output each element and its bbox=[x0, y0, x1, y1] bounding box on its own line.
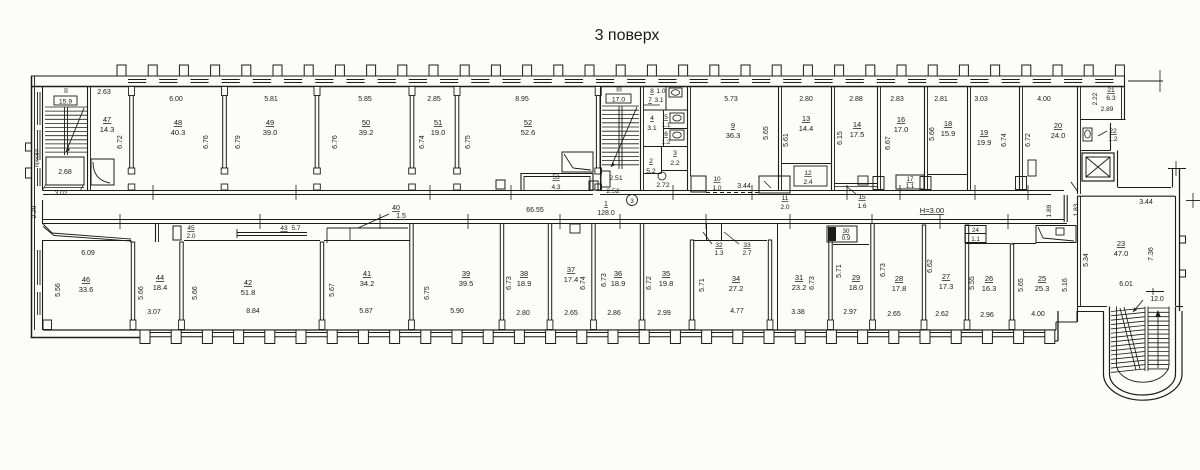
svg-text:41: 41 bbox=[363, 269, 371, 278]
svg-text:14.3: 14.3 bbox=[100, 125, 115, 134]
svg-text:5.67: 5.67 bbox=[329, 283, 336, 297]
svg-text:H=3.00: H=3.00 bbox=[920, 206, 944, 215]
svg-text:38: 38 bbox=[520, 269, 528, 278]
svg-text:5.7: 5.7 bbox=[291, 225, 300, 232]
svg-text:8.95: 8.95 bbox=[515, 96, 529, 103]
svg-text:5.65: 5.65 bbox=[763, 126, 770, 140]
svg-text:36.3: 36.3 bbox=[726, 131, 741, 140]
svg-text:5.85: 5.85 bbox=[358, 96, 372, 103]
svg-text:43: 43 bbox=[280, 225, 288, 232]
svg-text:37: 37 bbox=[567, 265, 575, 274]
svg-text:1.0: 1.0 bbox=[656, 88, 665, 95]
svg-text:5.66: 5.66 bbox=[192, 286, 199, 300]
svg-text:1.6: 1.6 bbox=[857, 203, 866, 210]
svg-text:5.87: 5.87 bbox=[359, 308, 373, 315]
svg-text:5: 5 bbox=[664, 114, 668, 121]
svg-text:1.89: 1.89 bbox=[1046, 204, 1053, 217]
svg-text:2.62: 2.62 bbox=[935, 311, 949, 318]
svg-text:3.1: 3.1 bbox=[647, 125, 657, 132]
svg-text:16: 16 bbox=[897, 115, 905, 124]
svg-text:15: 15 bbox=[858, 194, 866, 201]
svg-text:6.62: 6.62 bbox=[927, 259, 934, 273]
svg-text:4.00: 4.00 bbox=[1031, 311, 1045, 318]
svg-text:5.16: 5.16 bbox=[1062, 278, 1069, 292]
svg-text:3.02: 3.02 bbox=[55, 190, 68, 197]
svg-text:15.9: 15.9 bbox=[59, 99, 72, 106]
svg-text:2.72: 2.72 bbox=[656, 182, 669, 189]
svg-text:10: 10 bbox=[713, 176, 721, 183]
svg-text:22: 22 bbox=[1109, 128, 1117, 135]
svg-text:39.0: 39.0 bbox=[263, 128, 278, 137]
svg-text:2.4: 2.4 bbox=[803, 179, 812, 186]
svg-text:5.66: 5.66 bbox=[138, 286, 145, 300]
svg-text:18.4: 18.4 bbox=[153, 283, 168, 292]
svg-text:1.83: 1.83 bbox=[1073, 203, 1080, 216]
svg-text:5.71: 5.71 bbox=[699, 278, 706, 292]
svg-text:13: 13 bbox=[802, 114, 810, 123]
svg-text:2.80: 2.80 bbox=[516, 310, 530, 317]
svg-text:27.2: 27.2 bbox=[729, 284, 744, 293]
svg-text:2.97: 2.97 bbox=[843, 309, 857, 316]
svg-text:8.84: 8.84 bbox=[246, 308, 260, 315]
svg-text:25.3: 25.3 bbox=[1035, 284, 1050, 293]
svg-text:6.00: 6.00 bbox=[169, 96, 183, 103]
svg-text:8: 8 bbox=[650, 88, 654, 95]
svg-text:5.34: 5.34 bbox=[1083, 253, 1090, 267]
svg-text:40.3: 40.3 bbox=[171, 128, 186, 137]
svg-text:2.0: 2.0 bbox=[780, 204, 789, 211]
svg-text:5.56: 5.56 bbox=[55, 283, 62, 297]
svg-text:46: 46 bbox=[82, 275, 90, 284]
svg-text:47: 47 bbox=[103, 115, 111, 124]
svg-text:6.74: 6.74 bbox=[580, 276, 587, 290]
svg-text:3: 3 bbox=[630, 198, 634, 205]
svg-text:2.88: 2.88 bbox=[849, 96, 863, 103]
svg-text:2.52: 2.52 bbox=[606, 188, 619, 195]
svg-text:17.0: 17.0 bbox=[894, 125, 909, 134]
svg-text:17: 17 bbox=[907, 176, 914, 183]
svg-text:6.09: 6.09 bbox=[81, 250, 95, 257]
svg-text:3 поверх: 3 поверх bbox=[595, 27, 660, 44]
svg-text:23: 23 bbox=[1117, 239, 1125, 248]
svg-text:17.3: 17.3 bbox=[939, 282, 954, 291]
svg-text:2.51: 2.51 bbox=[609, 175, 622, 182]
svg-text:39.2: 39.2 bbox=[359, 128, 374, 137]
svg-text:1.1: 1.1 bbox=[971, 236, 980, 243]
svg-text:6.76: 6.76 bbox=[203, 135, 210, 149]
svg-text:35: 35 bbox=[662, 269, 670, 278]
svg-text:1.5: 1.5 bbox=[396, 213, 406, 220]
svg-text:5.55: 5.55 bbox=[969, 276, 976, 290]
svg-text:6.72: 6.72 bbox=[1025, 133, 1032, 147]
svg-text:2.63: 2.63 bbox=[97, 89, 111, 96]
svg-text:2.85: 2.85 bbox=[427, 96, 441, 103]
svg-text:2.65: 2.65 bbox=[564, 310, 578, 317]
svg-text:4.3: 4.3 bbox=[551, 184, 560, 191]
svg-text:18.0: 18.0 bbox=[849, 283, 864, 292]
svg-text:49: 49 bbox=[266, 118, 274, 127]
svg-text:6.73: 6.73 bbox=[506, 276, 513, 290]
svg-text:30: 30 bbox=[843, 228, 850, 235]
svg-text:17.0: 17.0 bbox=[612, 97, 625, 104]
svg-text:2.22: 2.22 bbox=[1092, 92, 1099, 105]
svg-text:2.96: 2.96 bbox=[980, 312, 994, 319]
svg-text:5.81: 5.81 bbox=[264, 96, 278, 103]
svg-text:26: 26 bbox=[985, 274, 993, 283]
svg-text:12: 12 bbox=[804, 170, 812, 177]
svg-text:6.73: 6.73 bbox=[809, 276, 816, 290]
svg-text:31: 31 bbox=[795, 273, 803, 282]
svg-text:3.44: 3.44 bbox=[1139, 199, 1153, 206]
svg-text:15.9: 15.9 bbox=[941, 129, 956, 138]
svg-text:5.66: 5.66 bbox=[929, 127, 936, 141]
svg-text:6.73: 6.73 bbox=[880, 263, 887, 277]
svg-text:27: 27 bbox=[942, 272, 950, 281]
svg-text:11: 11 bbox=[782, 195, 789, 202]
svg-text:2.68: 2.68 bbox=[58, 169, 72, 176]
svg-text:6.67: 6.67 bbox=[885, 136, 892, 150]
svg-text:18.9: 18.9 bbox=[517, 279, 532, 288]
svg-text:3.44: 3.44 bbox=[737, 183, 751, 190]
svg-text:6.73: 6.73 bbox=[601, 273, 608, 287]
svg-text:6.3: 6.3 bbox=[1106, 95, 1116, 102]
svg-text:3.38: 3.38 bbox=[791, 309, 805, 316]
svg-text:3.03: 3.03 bbox=[974, 96, 988, 103]
svg-text:24: 24 bbox=[972, 227, 979, 234]
svg-text:33.6: 33.6 bbox=[79, 285, 94, 294]
svg-text:5.2: 5.2 bbox=[646, 168, 656, 175]
svg-text:2.29: 2.29 bbox=[31, 205, 38, 218]
svg-text:51: 51 bbox=[434, 118, 442, 127]
svg-text:1.1: 1.1 bbox=[906, 183, 915, 190]
svg-text:6.72: 6.72 bbox=[117, 135, 124, 149]
svg-text:44: 44 bbox=[156, 273, 164, 282]
svg-text:4.77: 4.77 bbox=[730, 308, 744, 315]
svg-text:52.6: 52.6 bbox=[521, 128, 536, 137]
svg-text:19: 19 bbox=[980, 128, 988, 137]
svg-text:2.81: 2.81 bbox=[934, 96, 948, 103]
svg-text:2.99: 2.99 bbox=[657, 310, 671, 317]
svg-text:34.2: 34.2 bbox=[360, 279, 375, 288]
svg-text:45: 45 bbox=[187, 225, 195, 232]
svg-text:2.86: 2.86 bbox=[607, 310, 621, 317]
svg-text:3: 3 bbox=[673, 150, 677, 157]
svg-text:1.1: 1.1 bbox=[661, 122, 670, 129]
svg-text:просвіт: просвіт bbox=[35, 148, 41, 167]
svg-text:36: 36 bbox=[614, 269, 622, 278]
svg-text:17.4: 17.4 bbox=[564, 275, 579, 284]
svg-text:4.00: 4.00 bbox=[1037, 96, 1051, 103]
svg-text:6.75: 6.75 bbox=[424, 286, 431, 300]
svg-text:6.74: 6.74 bbox=[419, 135, 426, 149]
svg-text:6.01: 6.01 bbox=[1119, 281, 1133, 288]
svg-text:53: 53 bbox=[552, 174, 560, 181]
svg-text:40: 40 bbox=[392, 205, 400, 212]
svg-text:19.0: 19.0 bbox=[431, 128, 446, 137]
svg-text:6.74: 6.74 bbox=[1001, 133, 1008, 147]
svg-text:32: 32 bbox=[715, 242, 723, 249]
svg-text:II: II bbox=[64, 88, 68, 95]
svg-text:2.65: 2.65 bbox=[887, 311, 901, 318]
svg-text:20: 20 bbox=[1054, 121, 1062, 130]
svg-text:39.5: 39.5 bbox=[459, 279, 474, 288]
svg-text:21: 21 bbox=[1107, 87, 1115, 94]
svg-text:7.36: 7.36 bbox=[1148, 247, 1155, 261]
svg-text:2.2: 2.2 bbox=[670, 160, 680, 167]
svg-text:12.0: 12.0 bbox=[1150, 296, 1164, 303]
svg-text:2.7: 2.7 bbox=[742, 250, 751, 257]
svg-text:1.3: 1.3 bbox=[714, 250, 723, 257]
svg-text:17.5: 17.5 bbox=[850, 130, 865, 139]
svg-text:1.2: 1.2 bbox=[1108, 136, 1118, 143]
svg-text:52: 52 bbox=[524, 118, 532, 127]
svg-text:34: 34 bbox=[732, 274, 740, 283]
svg-text:5.71: 5.71 bbox=[836, 264, 843, 278]
svg-text:17.8: 17.8 bbox=[892, 284, 907, 293]
svg-text:2.0: 2.0 bbox=[186, 233, 195, 240]
svg-text:1.0: 1.0 bbox=[712, 185, 721, 192]
svg-text:7: 7 bbox=[648, 97, 652, 104]
svg-text:6.75: 6.75 bbox=[465, 135, 472, 149]
svg-text:25: 25 bbox=[1038, 274, 1046, 283]
svg-text:2.89: 2.89 bbox=[1101, 106, 1114, 113]
svg-text:0.9: 0.9 bbox=[842, 235, 851, 242]
svg-text:42: 42 bbox=[244, 278, 252, 287]
svg-text:19.9: 19.9 bbox=[977, 138, 992, 147]
svg-text:5.65: 5.65 bbox=[1018, 278, 1025, 292]
svg-text:III: III bbox=[616, 87, 622, 94]
svg-text:18: 18 bbox=[944, 119, 952, 128]
svg-text:23.2: 23.2 bbox=[792, 283, 807, 292]
svg-text:6.76: 6.76 bbox=[332, 135, 339, 149]
svg-text:1: 1 bbox=[604, 201, 608, 208]
svg-text:5.61: 5.61 bbox=[783, 133, 790, 147]
svg-text:18.9: 18.9 bbox=[611, 279, 626, 288]
svg-text:19.8: 19.8 bbox=[659, 279, 674, 288]
svg-text:16.3: 16.3 bbox=[982, 284, 997, 293]
svg-text:14.4: 14.4 bbox=[799, 124, 814, 133]
svg-text:3.07: 3.07 bbox=[147, 309, 161, 316]
svg-text:6.79: 6.79 bbox=[235, 135, 242, 149]
svg-text:2.83: 2.83 bbox=[890, 96, 904, 103]
svg-text:3.1: 3.1 bbox=[654, 97, 663, 104]
svg-text:47.0: 47.0 bbox=[1114, 249, 1129, 258]
svg-text:5.90: 5.90 bbox=[450, 308, 464, 315]
svg-text:9: 9 bbox=[731, 121, 735, 130]
svg-text:6.72: 6.72 bbox=[646, 276, 653, 290]
svg-text:50: 50 bbox=[362, 118, 370, 127]
svg-text:39: 39 bbox=[462, 269, 470, 278]
svg-text:51.8: 51.8 bbox=[241, 288, 256, 297]
svg-text:128.0: 128.0 bbox=[597, 210, 615, 217]
svg-text:28: 28 bbox=[895, 274, 903, 283]
svg-text:33: 33 bbox=[743, 242, 751, 249]
svg-text:4: 4 bbox=[650, 115, 654, 122]
svg-text:2: 2 bbox=[649, 158, 653, 165]
svg-text:14: 14 bbox=[853, 120, 861, 129]
svg-text:24.0: 24.0 bbox=[1051, 131, 1066, 140]
svg-text:2.80: 2.80 bbox=[799, 96, 813, 103]
svg-text:5.73: 5.73 bbox=[724, 96, 738, 103]
svg-text:48: 48 bbox=[174, 118, 182, 127]
svg-text:1.2: 1.2 bbox=[661, 139, 670, 146]
svg-text:29: 29 bbox=[852, 273, 860, 282]
svg-text:6: 6 bbox=[664, 131, 668, 138]
svg-text:6.15: 6.15 bbox=[837, 131, 844, 145]
svg-text:66.55: 66.55 bbox=[526, 207, 544, 214]
